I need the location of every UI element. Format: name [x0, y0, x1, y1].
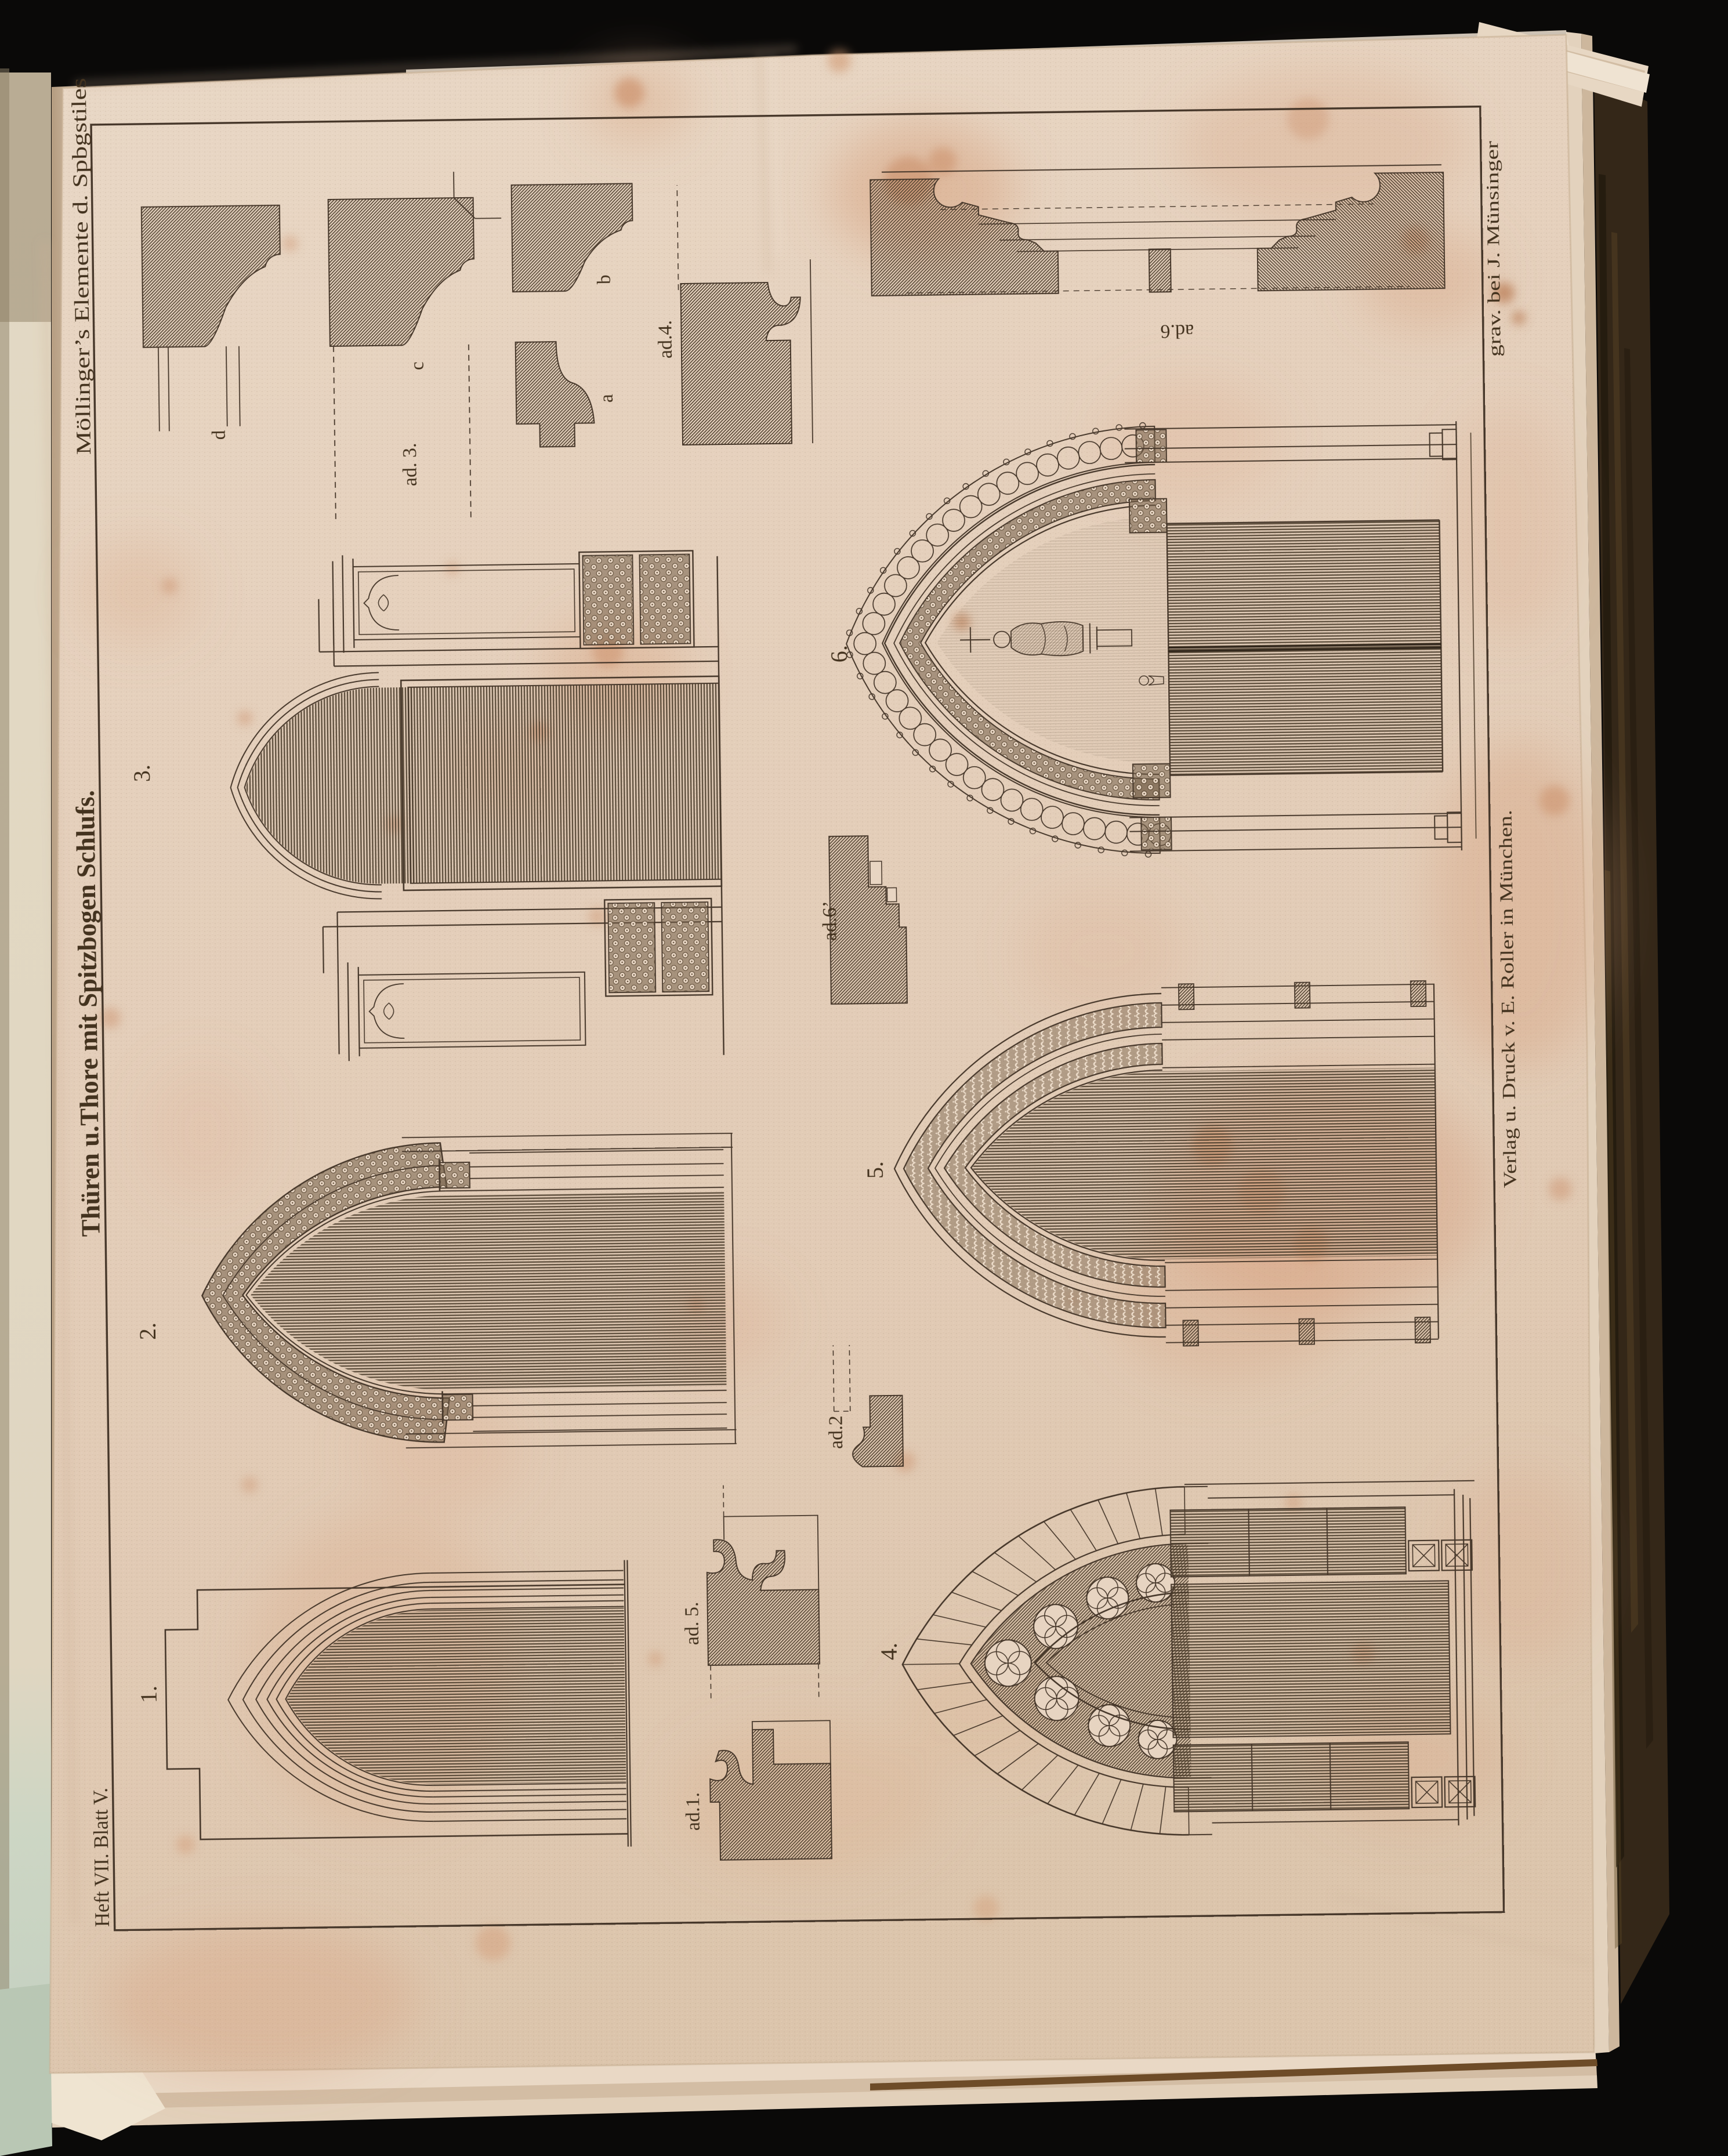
svg-text:ad.1.: ad.1. [682, 1792, 704, 1831]
svg-text:6.: 6. [826, 645, 852, 663]
svg-text:Heft VII. Blatt V.: Heft VII. Blatt V. [89, 1788, 114, 1927]
svg-text:a: a [596, 394, 617, 403]
svg-text:c: c [407, 361, 428, 370]
svg-text:3.: 3. [129, 764, 155, 782]
svg-text:ad.4.: ad.4. [654, 320, 676, 359]
svg-text:Thüren u.Thore mit Spitzbogen: Thüren u.Thore mit Spitzbogen Schlufs. [70, 790, 106, 1237]
svg-text:ad.6: ad.6 [1160, 320, 1194, 342]
svg-text:ad.2: ad.2 [825, 1415, 847, 1449]
svg-text:ad. 5.: ad. 5. [681, 1601, 703, 1645]
svg-text:d: d [209, 430, 230, 440]
svg-text:5.: 5. [862, 1161, 888, 1179]
svg-text:2.: 2. [135, 1322, 161, 1340]
svg-text:ad.6’: ad.6’ [819, 901, 841, 941]
svg-text:Möllinger’s Elemente d. Spbgst: Möllinger’s Elemente d. Spbgstiles [67, 78, 95, 455]
svg-text:grav. bei J. Münsinger: grav. bei J. Münsinger [1481, 140, 1505, 357]
svg-text:b: b [594, 274, 615, 284]
svg-text:ad. 3.: ad. 3. [399, 443, 421, 486]
svg-text:4.: 4. [876, 1643, 902, 1661]
svg-text:1.: 1. [136, 1686, 162, 1704]
